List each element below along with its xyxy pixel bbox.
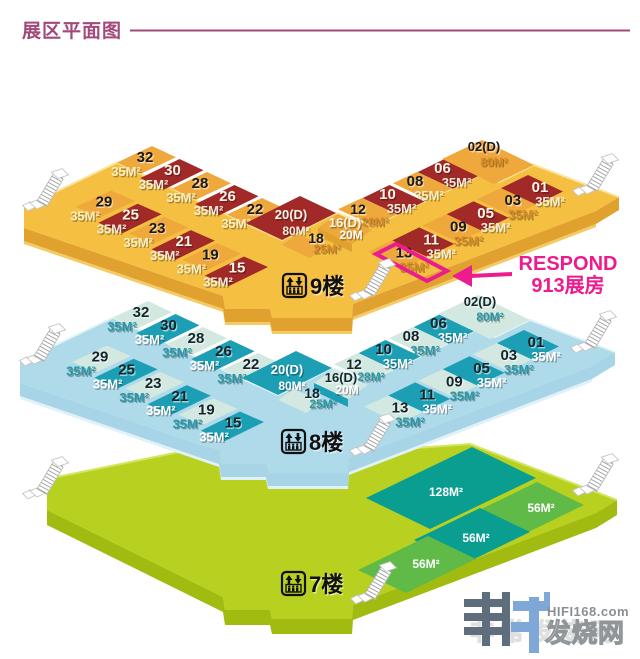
svg-text:80M²: 80M² [480,155,507,169]
svg-text:56M²: 56M² [527,501,554,515]
svg-text:35M²: 35M² [203,275,233,290]
svg-text:7楼: 7楼 [309,572,343,597]
svg-text:35M²: 35M² [481,220,511,235]
svg-text:35M²: 35M² [383,356,413,371]
svg-text:25M²: 25M² [309,397,336,411]
svg-text:35M²: 35M² [504,362,534,377]
svg-text:35M²: 35M² [217,371,247,386]
svg-text:发烧网: 发烧网 [544,618,625,648]
svg-text:35M²: 35M² [107,319,137,334]
svg-text:35M²: 35M² [422,401,452,416]
svg-text:35M²: 35M² [221,216,251,231]
svg-text:20M: 20M [335,383,358,397]
svg-text:35M²: 35M² [426,246,456,261]
svg-text:35M²: 35M² [450,388,480,403]
svg-text:35M²: 35M² [395,415,425,430]
svg-text:35M²: 35M² [162,345,192,360]
svg-text:35M²: 35M² [454,233,484,248]
svg-text:35M²: 35M² [535,194,565,209]
svg-text:RESPOND: RESPOND [519,253,618,275]
svg-text:28M²: 28M² [361,215,388,229]
svg-text:HIFI168.com: HIFI168.com [547,604,629,619]
svg-text:35M²: 35M² [166,190,196,205]
svg-text:20(D): 20(D) [271,362,304,377]
svg-text:35M²: 35M² [508,207,538,222]
svg-text:25M²: 25M² [313,242,340,256]
svg-text:35M²: 35M² [139,177,169,192]
svg-text:8楼: 8楼 [309,430,343,455]
svg-text:展区平面图: 展区平面图 [22,20,122,42]
svg-text:35M²: 35M² [387,201,417,216]
svg-text:02(D): 02(D) [464,294,497,309]
svg-text:913展房: 913展房 [531,273,604,297]
svg-text:56M²: 56M² [412,557,439,571]
svg-text:128M²: 128M² [429,485,463,499]
svg-text:80M²: 80M² [476,310,503,324]
svg-text:9楼: 9楼 [310,274,344,299]
svg-text:35M²: 35M² [194,203,224,218]
svg-text:02(D): 02(D) [468,139,501,154]
svg-text:20(D): 20(D) [275,207,308,222]
svg-text:35M²: 35M² [477,375,507,390]
svg-text:35M²: 35M² [190,358,220,373]
svg-text:35M²: 35M² [199,430,229,445]
svg-text:20M: 20M [339,228,362,242]
svg-text:35M²: 35M² [531,349,561,364]
svg-text:35M²: 35M² [135,332,165,347]
svg-text:35M²: 35M² [111,164,141,179]
svg-text:56M²: 56M² [462,531,489,545]
svg-text:28M²: 28M² [357,370,384,384]
